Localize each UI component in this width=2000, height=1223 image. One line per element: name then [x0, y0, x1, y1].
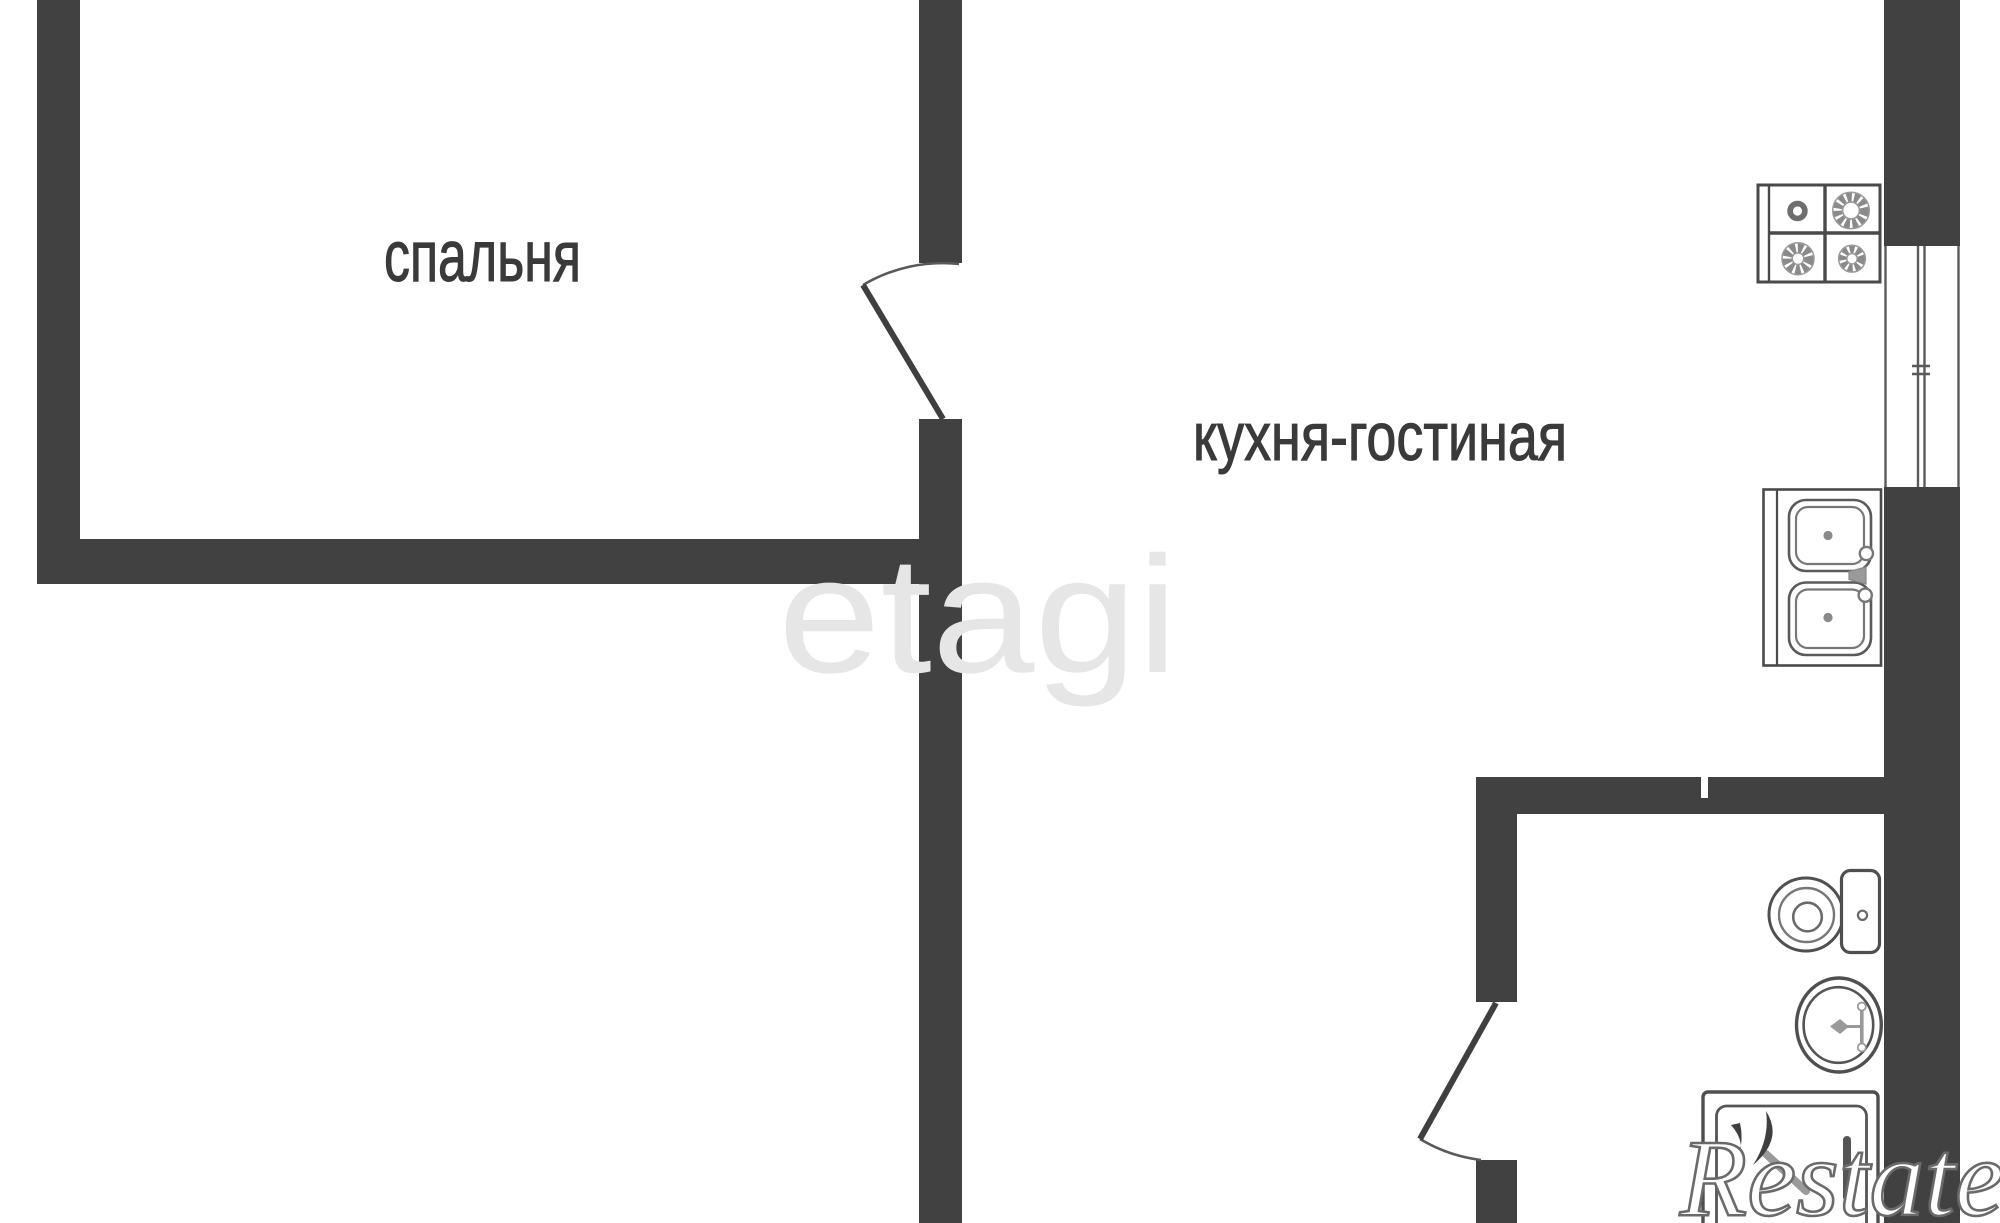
svg-text:Restate: Restate: [1679, 1117, 2000, 1223]
svg-text:спальня: спальня: [384, 217, 581, 297]
svg-text:etagi: etagi: [778, 523, 1178, 708]
svg-text:кухня-гостиная: кухня-гостиная: [1193, 399, 1567, 475]
